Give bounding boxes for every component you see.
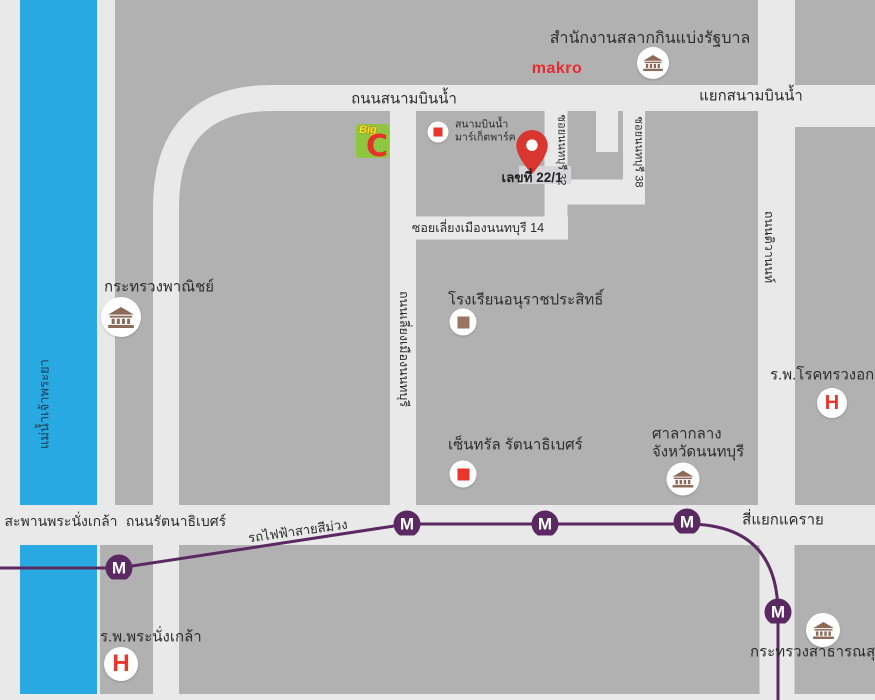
central-mall-square xyxy=(457,468,469,480)
ministry-health-building-icon xyxy=(806,613,840,647)
station-letter: M xyxy=(538,514,552,534)
map-canvas: M M M M M H H Big C สำนักงานสลากกินแบ่งร… xyxy=(0,0,875,700)
school-square xyxy=(457,316,469,328)
station-letter: M xyxy=(680,512,694,532)
mrt-station-icon: M xyxy=(765,599,792,626)
lottery-office-building-icon xyxy=(637,47,669,79)
chest-hospital-icon: H xyxy=(817,388,847,418)
label-ministry-commerce: กระทรวงพาณิชย์ xyxy=(104,278,214,295)
label-road-liang-mueang: ถนนเลี่ยงเมืองนนทบุรี xyxy=(397,291,411,407)
market-park-square xyxy=(434,128,443,137)
central-mall-icon xyxy=(450,461,477,488)
label-market-park-line1: สนามบินน้ำ xyxy=(455,119,508,132)
location-pin-icon xyxy=(516,130,548,174)
market-park-icon xyxy=(428,122,449,143)
label-soi-nonthaburi-38: ซอยนนทบุรี 38 xyxy=(632,117,645,188)
label-central-rattanathibet: เซ็นทรัล รัตนาธิเบศร์ xyxy=(448,436,583,453)
hospital-letter: H xyxy=(825,392,839,415)
label-soi-nonthaburi-32: ซอยนนทบุรี 32 xyxy=(555,115,568,186)
mrt-station-icon: M xyxy=(674,509,701,536)
label-address: เลขที่ 22/1 xyxy=(501,170,562,186)
school-icon xyxy=(450,309,477,336)
label-road-rattanathibet: ถนนรัตนาธิเบศร์ xyxy=(126,513,226,529)
mrt-station-icon: M xyxy=(532,511,559,538)
mrt-station-icon: M xyxy=(106,555,133,582)
label-khae-rai-intersection: สี่แยกแคราย xyxy=(742,511,824,528)
station-letter: M xyxy=(112,558,126,578)
big-c-logo: Big C xyxy=(356,124,389,158)
label-chao-phraya-river: แม่น้ำเจ้าพระยา xyxy=(38,359,53,449)
label-road-sanambin-nam: ถนนสนามบินน้ำ xyxy=(351,90,457,107)
label-sanambin-nam-junction: แยกสนามบินน้ำ xyxy=(699,87,803,104)
big-c-logo-c-text: C xyxy=(366,129,388,164)
hospital-letter: H xyxy=(112,650,129,678)
label-makro: makro xyxy=(532,60,583,78)
provincial-hall-building-icon xyxy=(667,463,700,496)
label-anurat-prasit-school: โรงเรียนอนุราชประสิทธิ์ xyxy=(448,291,603,308)
label-soi-liang-mueang-14: ซอยเลี่ยงเมืองนนทบุรี 14 xyxy=(412,221,544,235)
label-road-tiwanon: ถนนติวานนท์ xyxy=(762,211,776,283)
label-chest-hospital: ร.พ.โรคทรวงอก xyxy=(770,366,874,383)
label-lottery-office: สำนักงานสลากกินแบ่งรัฐบาล xyxy=(550,30,751,48)
mrt-station-icon: M xyxy=(394,511,421,538)
label-ministry-health: กระทรวงสาธารณสุข xyxy=(750,643,875,660)
station-letter: M xyxy=(771,602,785,622)
label-provincial-hall-line1: ศาลากลาง xyxy=(652,425,722,442)
label-market-park-line2: มาร์เก็ตพาร์ค xyxy=(455,132,516,145)
ministry-commerce-building-icon xyxy=(101,297,141,337)
label-phra-nangklao-hospital: ร.พ.พระนั่งเกล้า xyxy=(100,628,202,645)
phra-nangklao-hospital-icon: H xyxy=(104,647,138,681)
station-letter: M xyxy=(400,514,414,534)
label-phra-nangklao-bridge: สะพานพระนั่งเกล้า xyxy=(4,513,117,529)
label-provincial-hall-line2: จังหวัดนนทบุรี xyxy=(652,443,744,460)
